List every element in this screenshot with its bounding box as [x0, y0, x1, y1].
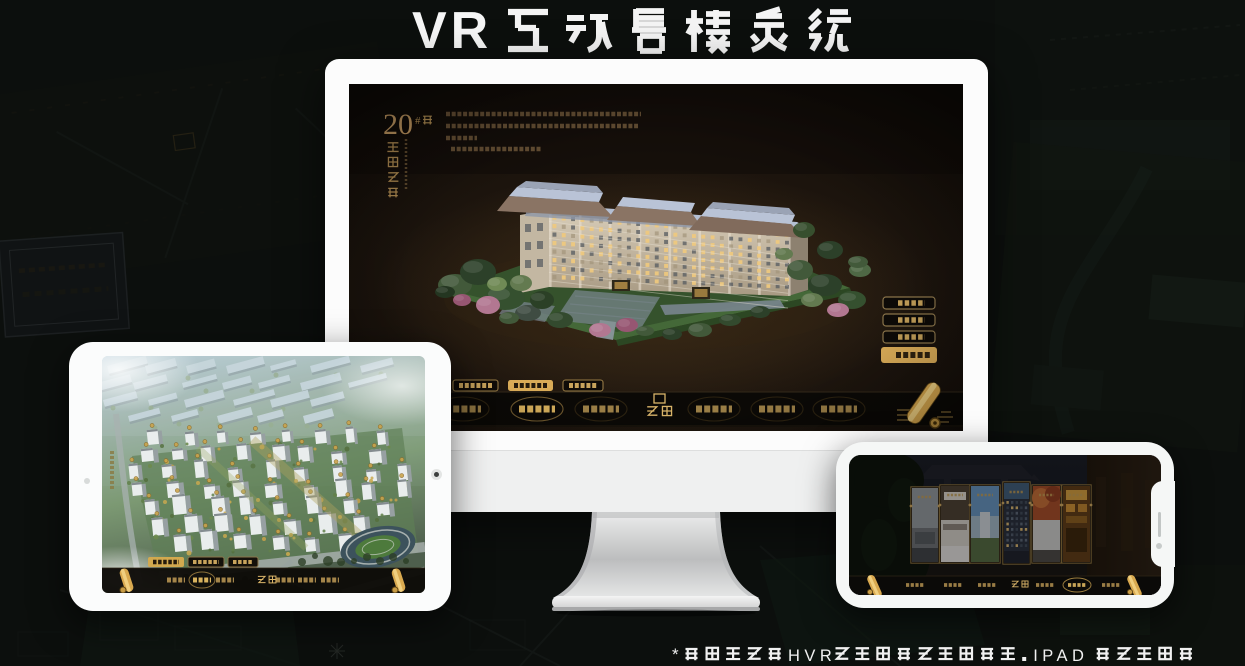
svg-text:HVR: HVR — [788, 647, 836, 665]
svg-text:VR: VR — [412, 3, 492, 59]
svg-text:IPAD: IPAD — [1033, 647, 1088, 665]
svg-text:*: * — [672, 645, 679, 664]
